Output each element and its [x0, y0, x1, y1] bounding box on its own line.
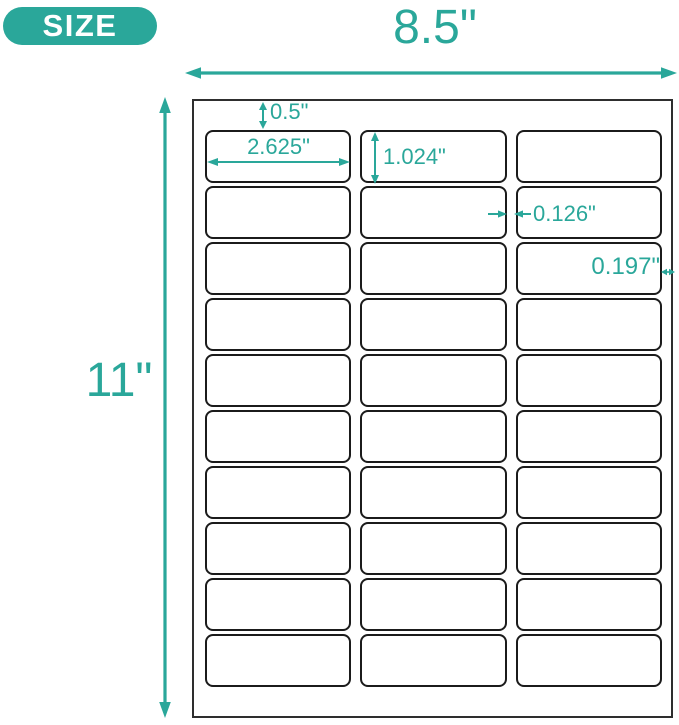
label-cell [360, 186, 506, 239]
label-cell [516, 410, 662, 463]
sheet-width-arrow [185, 65, 677, 81]
label-cell [360, 466, 506, 519]
label-cell [360, 410, 506, 463]
label-cell [516, 466, 662, 519]
label-cell [360, 578, 506, 631]
label-cell [205, 410, 351, 463]
column-gap-right-arrow [514, 209, 531, 219]
label-cell [360, 522, 506, 575]
column-gap-value: 0.126" [533, 202, 596, 226]
top-margin-arrow [257, 102, 269, 129]
sheet-height-value: 11" [74, 355, 164, 408]
label-cell [205, 186, 351, 239]
label-width-arrow [207, 156, 350, 168]
label-height-value: 1.024" [383, 145, 446, 169]
side-margin-value: 0.197" [520, 254, 660, 280]
label-cell [205, 242, 351, 295]
label-cell [205, 298, 351, 351]
label-cell [205, 466, 351, 519]
label-cell [205, 634, 351, 687]
label-cell [516, 522, 662, 575]
label-cell [360, 242, 506, 295]
label-cell [516, 634, 662, 687]
label-cell [516, 354, 662, 407]
label-cell [360, 634, 506, 687]
label-cell [516, 578, 662, 631]
label-cell [360, 298, 506, 351]
label-cell [516, 130, 662, 183]
label-cell [516, 298, 662, 351]
sheet-height-arrow [157, 97, 173, 718]
sheet-width-value: 8.5" [330, 2, 540, 55]
label-cell [360, 354, 506, 407]
label-cell [205, 354, 351, 407]
size-badge: SIZE [3, 7, 157, 45]
top-margin-value: 0.5" [270, 100, 308, 124]
label-size-diagram: SIZE 8.5" 11" 0.5" 2.625" 1.024" [0, 0, 679, 725]
label-cell [205, 578, 351, 631]
label-height-arrow [369, 132, 381, 184]
size-badge-label: SIZE [43, 8, 118, 44]
column-gap-left-arrow [488, 209, 507, 219]
side-margin-arrow [661, 267, 675, 277]
label-cell [205, 522, 351, 575]
label-sheet [192, 99, 673, 718]
